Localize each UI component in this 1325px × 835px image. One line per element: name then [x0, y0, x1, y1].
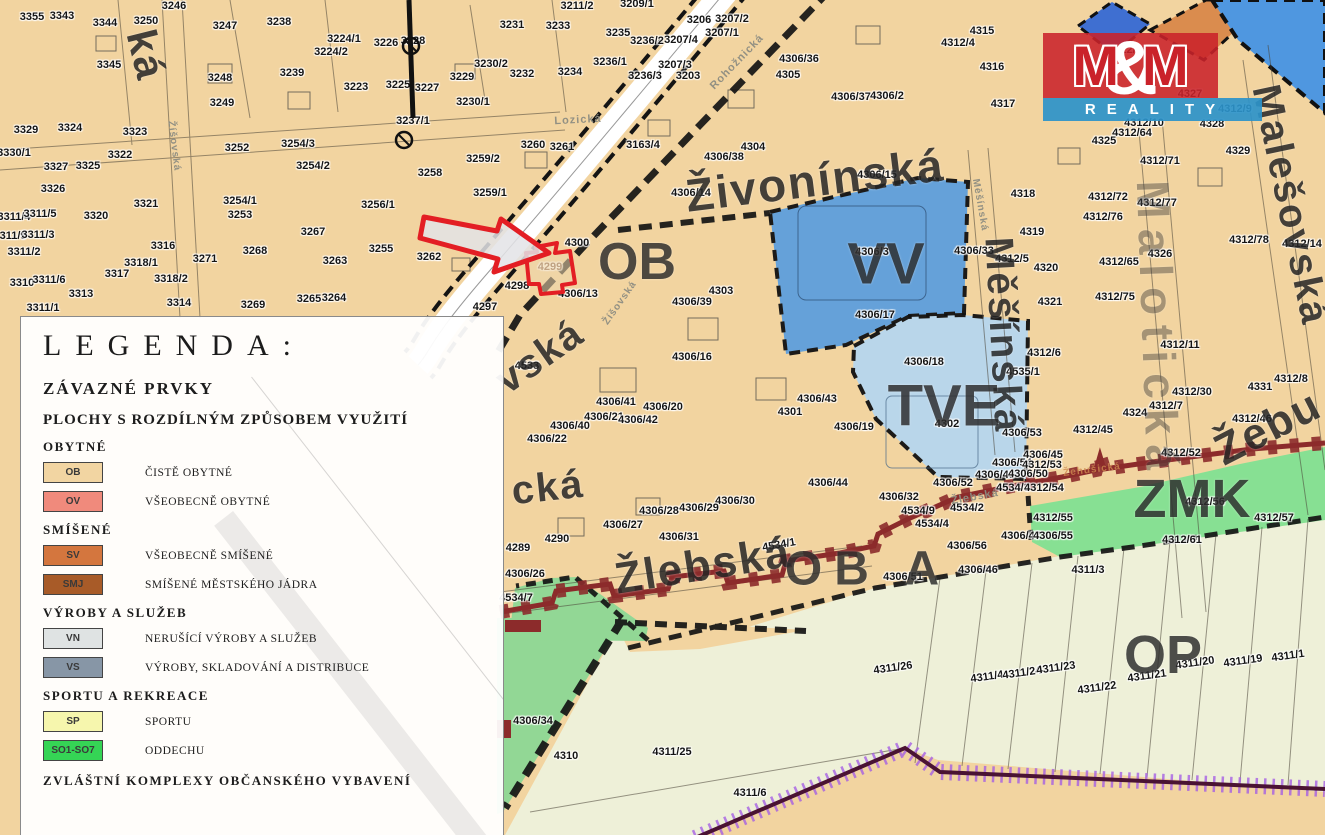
legend-subtitle-1: ZÁVAZNÉ PRVKY	[43, 379, 503, 399]
logo-letter-m1: M	[1072, 38, 1119, 94]
legend-group-heading: SMÍŠENÉ	[43, 522, 503, 538]
legend-group-heading: SPORTU A REKREACE	[43, 688, 503, 704]
legend-footer: ZVLÁŠTNÍ KOMPLEXY OBČANSKÉHO VYBAVENÍ	[43, 773, 503, 789]
legend-item: OVVŠEOBECNĚ OBYTNÉ	[43, 491, 503, 512]
legend-item-label: VŠEOBECNĚ OBYTNÉ	[145, 496, 270, 508]
legend-item-label: NERUŠÍCÍ VÝROBY A SLUŽEB	[145, 633, 317, 645]
legend-item: SMJSMÍŠENÉ MĚSTSKÉHO JÁDRA	[43, 574, 503, 595]
legend-swatch: SO1-SO7	[43, 740, 103, 761]
legend-item: SPSPORTU	[43, 711, 503, 732]
logo-letter-m2: M	[1142, 38, 1189, 94]
legend-item-label: SPORTU	[145, 716, 191, 728]
legend-item: VSVÝROBY, SKLADOVÁNÍ A DISTRIBUCE	[43, 657, 503, 678]
legend-group-heading: VÝROBY A SLUŽEB	[43, 605, 503, 621]
mm-reality-logo: M & M REALITY	[1043, 33, 1262, 121]
legend-item: OBČISTĚ OBYTNÉ	[43, 462, 503, 483]
legend-item: SO1-SO7ODDECHU	[43, 740, 503, 761]
legend-subtitle-2: PLOCHY S ROZDÍLNÝM ZPŮSOBEM VYUŽITÍ	[43, 412, 503, 429]
legend-swatch: VN	[43, 628, 103, 649]
legend-swatch: SV	[43, 545, 103, 566]
legend-item-label: ODDECHU	[145, 745, 205, 757]
legend-swatch: SMJ	[43, 574, 103, 595]
legend-groups: OBYTNÉOBČISTĚ OBYTNÉOVVŠEOBECNĚ OBYTNÉSM…	[43, 439, 503, 761]
legend-item-label: VÝROBY, SKLADOVÁNÍ A DISTRIBUCE	[145, 662, 369, 674]
legend-item: VNNERUŠÍCÍ VÝROBY A SLUŽEB	[43, 628, 503, 649]
legend-swatch: OB	[43, 462, 103, 483]
legend-item-label: VŠEOBECNĚ SMÍŠENÉ	[145, 550, 273, 562]
legend-group-heading: OBYTNÉ	[43, 439, 503, 455]
legend-panel: LEGENDA: ZÁVAZNÉ PRVKY PLOCHY S ROZDÍLNÝ…	[20, 316, 504, 835]
legend-swatch: SP	[43, 711, 103, 732]
zoning-map: 3355334333443345325032463247323832483239…	[0, 0, 1325, 835]
legend-title: LEGENDA:	[43, 329, 503, 363]
legend-item-label: SMÍŠENÉ MĚSTSKÉHO JÁDRA	[145, 579, 318, 591]
mm-logo-mark: M & M	[1043, 33, 1218, 98]
legend-item: SVVŠEOBECNĚ SMÍŠENÉ	[43, 545, 503, 566]
legend-item-label: ČISTĚ OBYTNÉ	[145, 467, 232, 479]
legend-swatch: VS	[43, 657, 103, 678]
legend-swatch: OV	[43, 491, 103, 512]
